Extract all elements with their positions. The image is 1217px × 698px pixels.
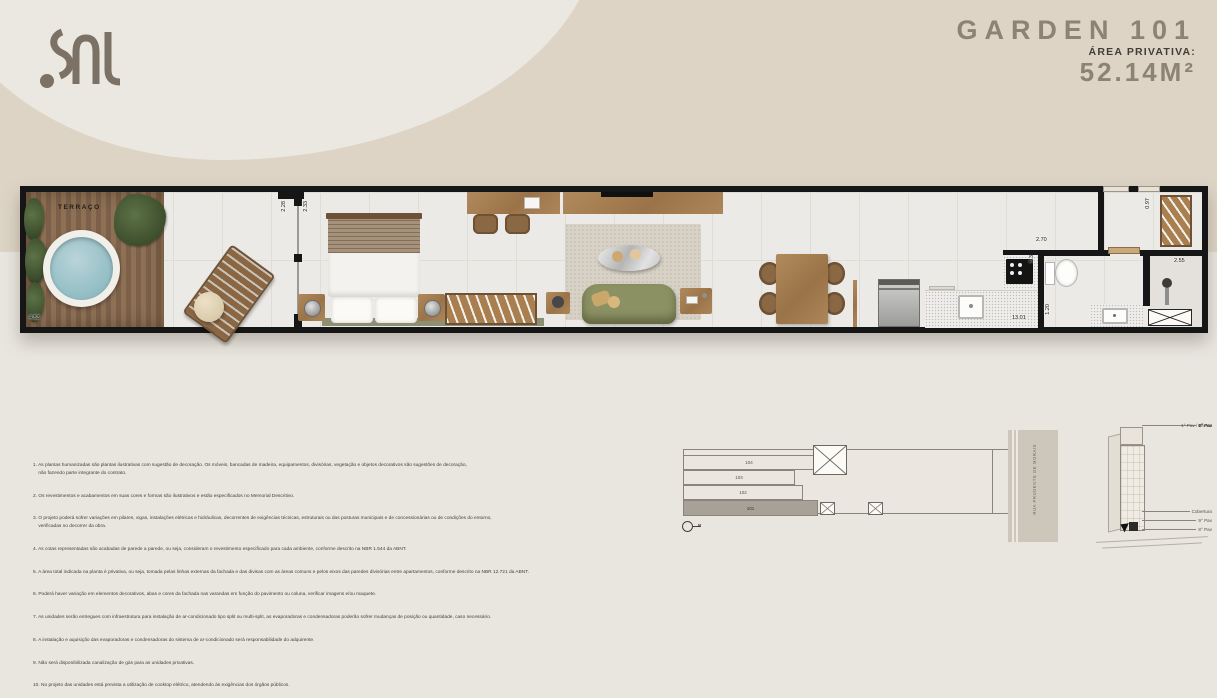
dim-kitchen-width: 2.70	[1036, 237, 1047, 243]
entry-door	[1103, 186, 1129, 192]
storage-bench	[445, 293, 537, 325]
faucet	[1113, 314, 1116, 317]
note-line: 7. As unidades serão entregues com infra…	[33, 614, 573, 622]
bathroom-door	[1108, 247, 1140, 254]
cooktop	[1006, 259, 1033, 284]
floor-label: 9° Pav	[1198, 518, 1212, 523]
leader-line	[1142, 520, 1196, 521]
lounge-chair	[182, 244, 275, 344]
note-line: 5. A área total indicada na planta é pri…	[33, 569, 573, 577]
leader-line	[1142, 425, 1179, 426]
duct-shaft	[1148, 309, 1192, 326]
coffee-table	[598, 245, 660, 271]
dim-entry-width: 0.97	[1145, 198, 1151, 209]
north-label: N	[698, 523, 701, 528]
burner	[1018, 263, 1022, 267]
wall-jog	[278, 192, 304, 199]
burner	[1018, 271, 1022, 275]
tray	[630, 249, 641, 260]
entry-door	[1138, 186, 1160, 192]
site-core-shaft	[813, 445, 847, 475]
tv	[601, 192, 653, 197]
fridge-handle	[879, 288, 919, 290]
floor-label: 1° Pav / Térreo	[1181, 423, 1212, 428]
street-line	[1016, 430, 1018, 542]
faucet	[969, 304, 973, 308]
site-connector-line	[993, 513, 1008, 514]
floor-row: 1° Pav / Térreo	[1142, 423, 1212, 428]
leader-line	[1142, 529, 1196, 530]
floor-plan: TERRAÇO 4.53 2.28 2.33	[20, 186, 1208, 333]
dim-terrace-width: 4.53	[29, 315, 40, 321]
floor-row: Cobertura	[1142, 509, 1212, 514]
table-lamp-dark	[552, 296, 564, 308]
site-shaft-small	[820, 502, 835, 515]
building-elevation: Cobertura 9° Pav 8° Pav 7° Pav 6° Pav 5°…	[1096, 423, 1214, 555]
book	[524, 197, 540, 209]
street-name: RUA PRUDENTE DE MORAIS	[1032, 444, 1037, 515]
lamp	[424, 300, 441, 317]
sal-logo-icon	[38, 26, 124, 98]
ground-line	[1096, 536, 1208, 543]
lamp	[304, 300, 321, 317]
floor-plan-interior: TERRAÇO 4.53 2.28 2.33	[26, 192, 1202, 327]
leader-line	[1142, 511, 1190, 512]
entry-bench	[1160, 195, 1192, 247]
shower-head	[1162, 278, 1172, 288]
dim-door-b: 2.33	[303, 201, 309, 212]
wall-bath-shower	[1143, 256, 1150, 306]
dim-bath-width: 1.20	[1045, 304, 1051, 315]
bed-blanket	[328, 219, 420, 253]
floor-label: Cobertura	[1192, 509, 1212, 514]
fridge-handle	[879, 280, 919, 285]
street-band: RUA PRUDENTE DE MORAIS	[1008, 430, 1058, 542]
wall-divider-mid	[294, 254, 302, 262]
bed-pillow	[375, 297, 417, 323]
wall-kitchen-top	[1003, 250, 1038, 255]
note-line: 9. Não será disponibilizada canalização …	[33, 660, 573, 668]
dining-table	[776, 254, 828, 324]
ground-line	[1102, 542, 1202, 548]
fridge	[878, 279, 920, 327]
burner	[1010, 263, 1014, 267]
note-line: 6. Poderá haver variação em elementos de…	[33, 591, 573, 599]
toilet	[1055, 259, 1078, 287]
elevation-roof-box	[1120, 427, 1143, 445]
sliding-glass-door	[297, 206, 299, 254]
north-arrow-icon	[682, 521, 693, 532]
note-line: 2. Os revestimentos e acabamentos em sua…	[33, 493, 573, 501]
pool	[43, 230, 120, 307]
site-shaft-small	[868, 502, 883, 515]
wall-entry	[1098, 192, 1104, 250]
wall-kitchen-bath	[1038, 250, 1044, 327]
page-title: GARDEN 101	[956, 15, 1196, 46]
area-value: 52.14M²	[1080, 57, 1196, 88]
bed-duvet	[328, 253, 420, 297]
bed-pillow	[331, 297, 373, 323]
site-unit-102: 102	[683, 485, 803, 500]
floor-label: 8° Pav	[1198, 527, 1212, 532]
book	[686, 296, 698, 304]
disclaimer-notes: 1. As plantas humanizadas são plantas il…	[33, 447, 573, 698]
cabinet-panel	[853, 280, 857, 327]
site-plan: 104 103 102 101 RUA PRUDENTE DE MORAIS N	[660, 430, 1070, 545]
vase	[702, 293, 707, 298]
note-line: 10. No projeto das unidades está previst…	[33, 682, 573, 690]
street-line	[1012, 430, 1014, 542]
tray	[612, 251, 623, 262]
floor-row: 8° Pav	[1142, 527, 1212, 532]
ottoman-table	[194, 292, 224, 322]
burner	[1010, 271, 1014, 275]
counter-shelf	[929, 286, 955, 290]
desk	[467, 192, 560, 214]
dim-plan-length: 13.01	[1012, 315, 1026, 321]
desk-chair	[473, 214, 498, 234]
wall-bath-top-left	[1038, 250, 1110, 256]
note-line: 4. As cotas representadas são acabadas d…	[33, 546, 573, 554]
site-unit-101-highlighted: 101	[683, 500, 818, 516]
shower-column	[1165, 288, 1169, 305]
sal-logo	[38, 26, 124, 98]
note-line: 1. As plantas humanizadas são plantas il…	[33, 462, 573, 477]
note-line: 3. O projeto poderá sofrer variações em …	[33, 515, 573, 530]
site-unit-104: 104	[683, 455, 815, 470]
site-connector-line	[993, 449, 1008, 450]
room-label-terrace: TERRAÇO	[58, 204, 101, 211]
toilet-tank	[1045, 262, 1055, 285]
sofa-cushion	[608, 296, 620, 308]
site-unit-103: 103	[683, 470, 795, 485]
note-line: 8. A instalação e aquisição das evaporad…	[33, 637, 573, 645]
floor-row: 9° Pav	[1142, 518, 1212, 523]
dim-door-a: 2.28	[281, 201, 287, 212]
dim-shower-width: 2.55	[1174, 258, 1185, 264]
desk-chair	[505, 214, 530, 234]
